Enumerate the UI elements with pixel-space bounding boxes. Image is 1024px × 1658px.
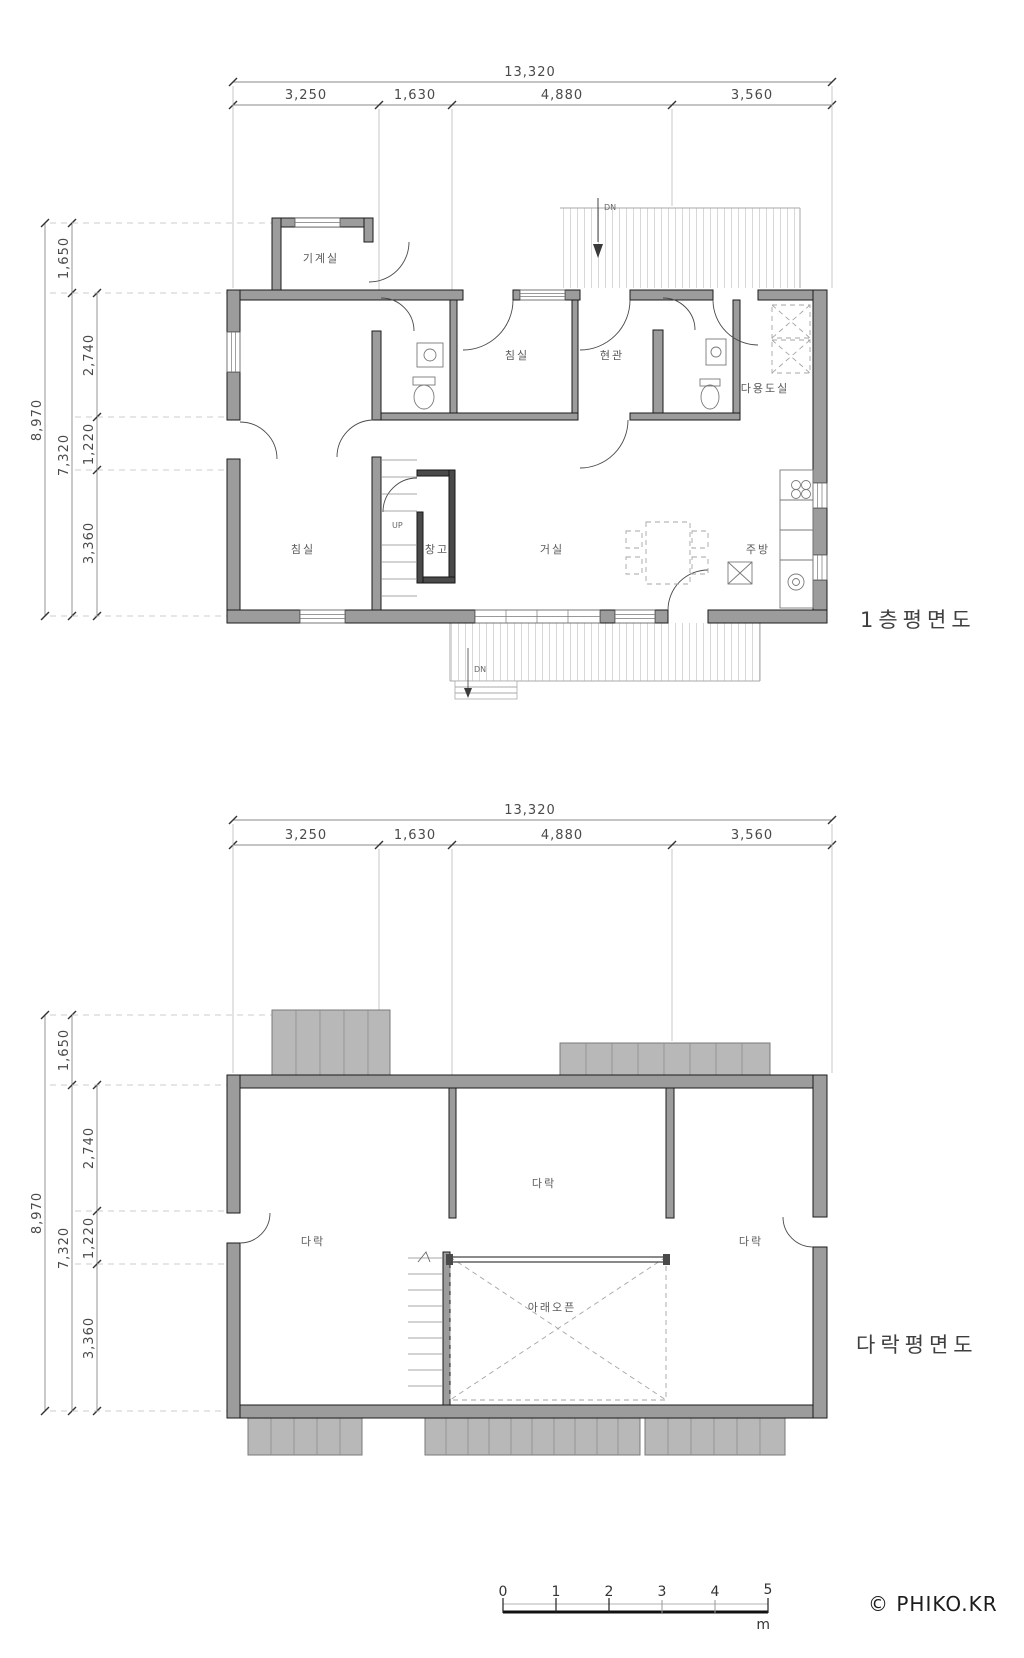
ff-room-machine: 기계실: [303, 252, 339, 265]
ff-stair-up-label: UP: [392, 521, 403, 530]
drawing-sheet: 13,320 3,250 1,630 4,880 3,560 8,970 1,6…: [0, 0, 1024, 1658]
ff-plan-title: 1층평면도: [860, 608, 976, 632]
ff-dining-table: [626, 522, 708, 584]
ff-kitchen-counter: [728, 470, 813, 608]
at-dim-h2: 2,740: [82, 1127, 97, 1169]
scale-tick-4: 4: [711, 1584, 720, 1600]
ff-dim-w3: 4,880: [541, 88, 583, 103]
scale-bar: 0 1 2 3 4 5 m: [499, 1582, 773, 1633]
scale-tick-5: 5: [764, 1582, 773, 1598]
ff-deck-top: DN: [560, 198, 800, 288]
floor-plan-drawing: 13,320 3,250 1,630 4,880 3,560 8,970 1,6…: [0, 0, 1024, 1658]
at-dim-w3: 4,880: [541, 828, 583, 843]
ff-dim-w4: 3,560: [731, 88, 773, 103]
at-room-labels: 다락 다락 다락: [301, 1177, 763, 1248]
ff-dim-total-height: 8,970: [30, 399, 45, 441]
at-dim-total-width: 13,320: [504, 803, 556, 818]
ff-room-bedroom-top: 침실: [505, 349, 529, 362]
ff-room-bedroom: 침실: [291, 543, 315, 556]
attic-plan: 13,320 3,250 1,630 4,880 3,560 8,970 1,6…: [30, 803, 978, 1455]
ff-dim-h4: 3,360: [82, 522, 97, 564]
scale-tick-0: 0: [499, 1584, 508, 1600]
ff-bathroom1-fixtures: [413, 343, 443, 409]
at-stair: [408, 1252, 443, 1386]
ff-room-kitchen: 주방: [746, 543, 770, 556]
ff-room-utility: 다용도실: [741, 382, 789, 395]
at-dim-w1: 3,250: [285, 828, 327, 843]
ff-room-labels: 침실 현관 다용도실 침실 창고 거실 주방: [291, 349, 789, 556]
ff-room-storage: 창고: [425, 543, 449, 556]
at-open-void: 아래오픈: [446, 1254, 670, 1400]
at-dim-h1: 1,650: [57, 1029, 72, 1071]
ff-dim-total-width: 13,320: [504, 65, 556, 80]
first-floor-plan: 13,320 3,250 1,630 4,880 3,560 8,970 1,6…: [30, 65, 976, 699]
ff-utility-appliances: [772, 305, 810, 373]
at-dim-w4: 3,560: [731, 828, 773, 843]
scale-unit-label: m: [756, 1617, 770, 1633]
ff-deck-bottom: DN: [450, 623, 760, 699]
ff-dim-h3: 1,220: [82, 423, 97, 465]
scale-tick-3: 3: [658, 1584, 667, 1600]
at-dim-h4: 3,360: [82, 1317, 97, 1359]
ff-bathroom2-fixtures: [700, 339, 726, 409]
scale-tick-1: 1: [552, 1584, 561, 1600]
scale-tick-2: 2: [605, 1584, 614, 1600]
ff-dim-h2: 2,740: [82, 334, 97, 376]
ff-porch-dn-label: DN: [474, 665, 486, 674]
ff-door-arcs: [240, 298, 758, 610]
at-plan-title: 다락평면도: [856, 1333, 978, 1357]
ff-stair: UP: [381, 460, 417, 596]
ff-room-living: 거실: [540, 543, 564, 556]
at-dim-total-height: 8,970: [30, 1192, 45, 1234]
at-dim-w2: 1,630: [394, 828, 436, 843]
at-dim-h3: 1,220: [82, 1217, 97, 1259]
ff-dim-sub-height: 7,320: [57, 434, 72, 476]
ff-deck-dn-label: DN: [604, 203, 616, 212]
at-open-below-label: 아래오픈: [528, 1301, 576, 1314]
ff-interior-walls: [372, 300, 740, 610]
ff-room-entry: 현관: [600, 349, 624, 362]
ff-dim-w1: 3,250: [285, 88, 327, 103]
ff-dim-h1: 1,650: [57, 237, 72, 279]
at-dim-sub-height: 7,320: [57, 1227, 72, 1269]
ff-dim-w2: 1,630: [394, 88, 436, 103]
at-room-attic-right: 다락: [739, 1235, 763, 1248]
credit-text: © PHIKO.KR: [868, 1592, 998, 1616]
at-room-attic-center: 다락: [532, 1177, 556, 1190]
at-room-attic-left: 다락: [301, 1235, 325, 1248]
ff-machine-room: 기계실: [272, 218, 409, 290]
